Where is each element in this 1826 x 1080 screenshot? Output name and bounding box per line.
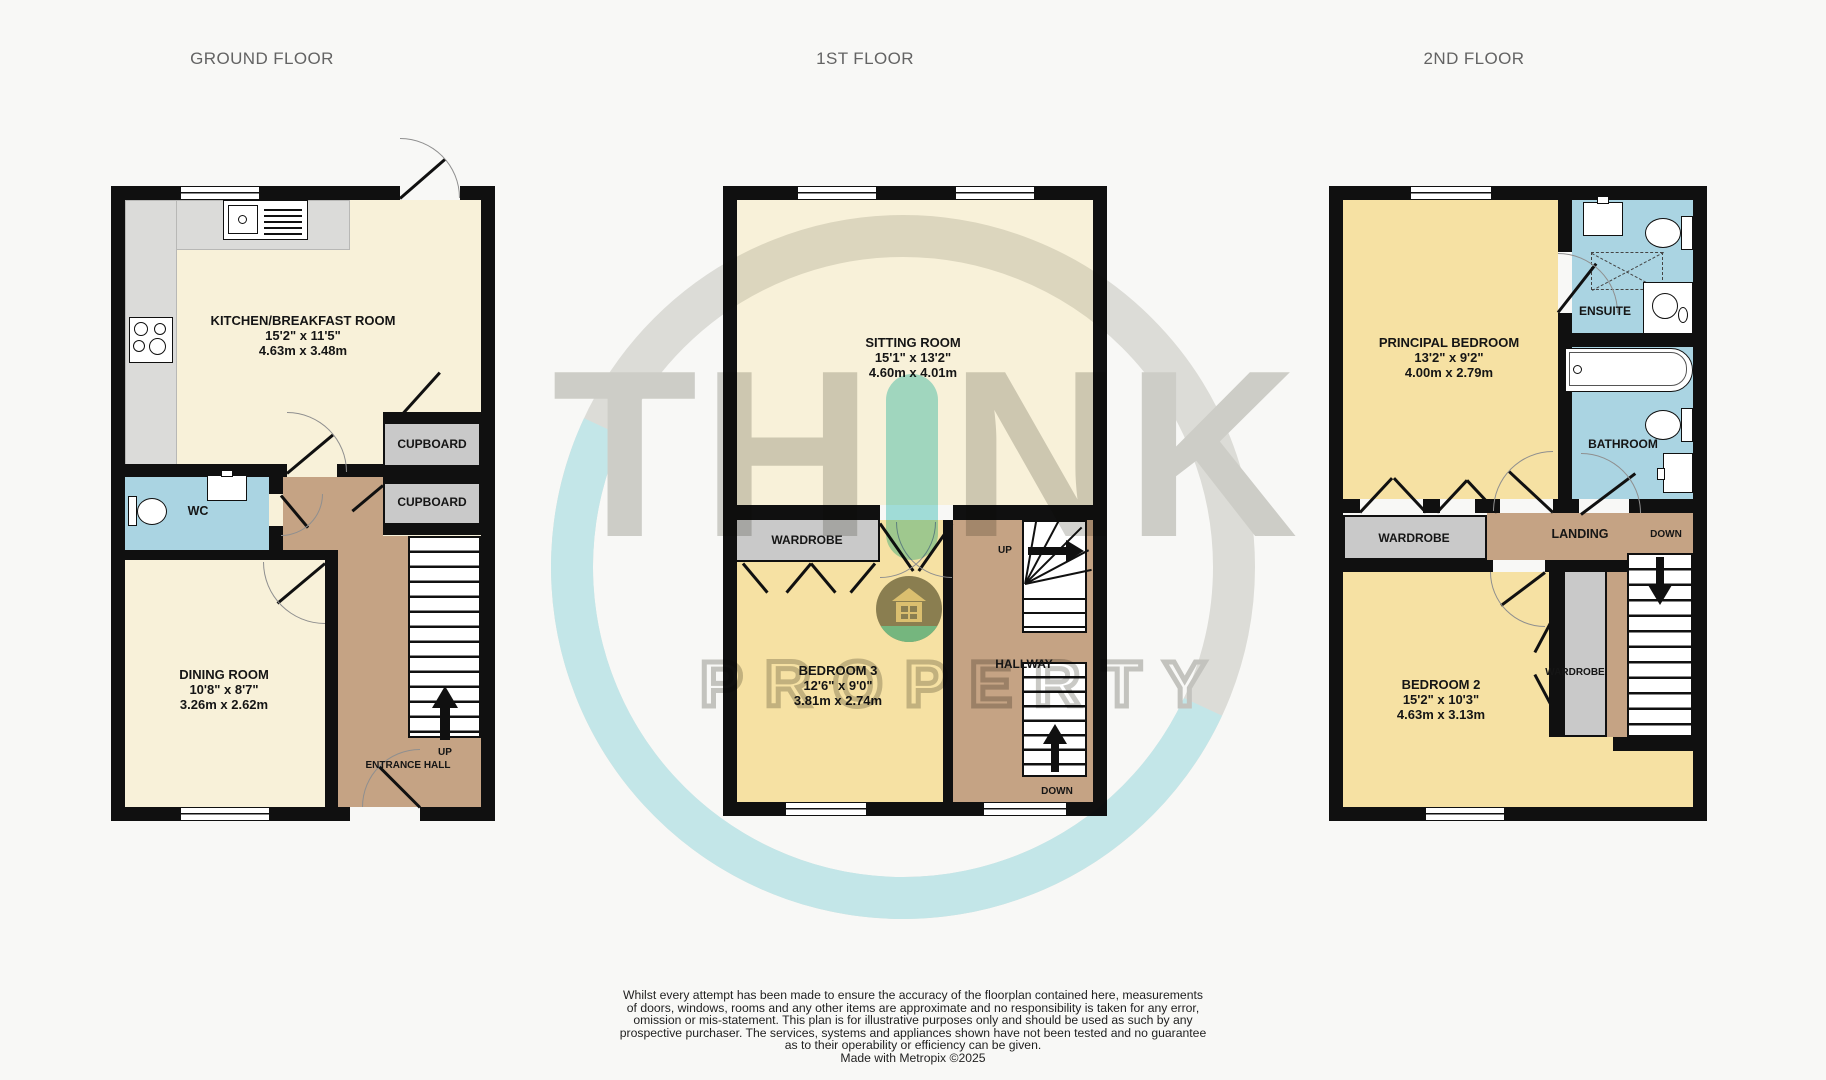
ground-floor-plan: KITCHEN/BREAKFAST ROOM 15'2" x 11'5" 4.6… bbox=[111, 186, 495, 821]
room-dim-metric: 3.81m x 2.74m bbox=[794, 693, 882, 708]
up-label: UP bbox=[998, 545, 1012, 556]
sink-bowl bbox=[228, 205, 258, 234]
stair-tread bbox=[1024, 626, 1085, 628]
stair-tread bbox=[1024, 612, 1085, 614]
cupboard1-label: CUPBOARD bbox=[397, 437, 466, 451]
entrance-hall-label: ENTRANCE HALL bbox=[366, 760, 451, 771]
down-label: DOWN bbox=[1041, 786, 1073, 797]
shower-head bbox=[1652, 293, 1678, 319]
landing-label: LANDING bbox=[1552, 527, 1609, 541]
wall-segment bbox=[1343, 499, 1360, 513]
room-dim-imperial: 15'2" x 10'3" bbox=[1397, 692, 1485, 707]
bedroom2-wardrobe bbox=[1563, 567, 1607, 737]
burner bbox=[154, 323, 166, 335]
wardrobe-label: WARDROBE bbox=[1378, 531, 1449, 545]
principal-bedroom-label: PRINCIPAL BEDROOM 13'2" x 9'2" 4.00m x 2… bbox=[1379, 335, 1519, 380]
stairs-up-arrow-stem bbox=[440, 706, 450, 740]
bath-tap bbox=[1573, 365, 1582, 374]
room-dim-metric: 4.63m x 3.13m bbox=[1397, 707, 1485, 722]
window bbox=[1410, 186, 1492, 200]
second-floor-plan: PRINCIPAL BEDROOM 13'2" x 9'2" 4.00m x 2… bbox=[1329, 186, 1707, 821]
window bbox=[180, 186, 260, 200]
bedroom3-label: BEDROOM 3 12'6" x 9'0" 3.81m x 2.74m bbox=[794, 663, 882, 708]
sink-drain bbox=[238, 215, 247, 224]
room-name: BEDROOM 2 bbox=[1397, 677, 1485, 692]
ensuite-basin bbox=[1583, 202, 1623, 236]
bathroom-label: BATHROOM bbox=[1588, 437, 1658, 451]
disclaimer-line: Whilst every attempt has been made to en… bbox=[413, 989, 1413, 1002]
bath-tub bbox=[1565, 348, 1693, 392]
wc-label: WC bbox=[188, 504, 209, 518]
drainer-line bbox=[264, 215, 302, 217]
drainer-line bbox=[264, 209, 302, 211]
wall-segment bbox=[1572, 333, 1693, 347]
wall-segment bbox=[111, 550, 338, 560]
wall-segment bbox=[1329, 807, 1707, 821]
wall-segment bbox=[1093, 186, 1107, 816]
bath-inner bbox=[1569, 352, 1687, 386]
wall-segment bbox=[723, 186, 1107, 200]
landing-strip bbox=[1607, 567, 1627, 737]
basin-tap bbox=[1597, 196, 1609, 204]
wall-segment bbox=[1558, 313, 1572, 499]
window bbox=[180, 807, 270, 821]
room-dim-metric: 4.00m x 2.79m bbox=[1379, 365, 1519, 380]
room-name: KITCHEN/BREAKFAST ROOM bbox=[211, 313, 396, 328]
kitchen-sink-unit bbox=[223, 200, 308, 240]
wall-segment bbox=[383, 525, 481, 535]
basin-tap bbox=[221, 470, 233, 477]
wardrobe2-label: WARDROBE bbox=[1545, 667, 1604, 678]
wall-segment bbox=[383, 467, 481, 482]
basin-tap bbox=[1657, 468, 1665, 480]
wall-segment bbox=[723, 186, 737, 816]
shower-control bbox=[1678, 307, 1688, 323]
room-name: PRINCIPAL BEDROOM bbox=[1379, 335, 1519, 350]
down-arrow-stem bbox=[1051, 742, 1059, 772]
cupboard2-label: CUPBOARD bbox=[397, 495, 466, 509]
hob bbox=[129, 317, 173, 363]
back-door-arc bbox=[400, 138, 460, 198]
ensuite-label: ENSUITE bbox=[1579, 304, 1631, 318]
dining-label: DINING ROOM 10'8" x 8'7" 3.26m x 2.62m bbox=[179, 667, 269, 712]
wc-toilet-bowl bbox=[137, 498, 167, 525]
window bbox=[1425, 807, 1505, 821]
wall-segment bbox=[325, 560, 338, 807]
window bbox=[797, 186, 877, 200]
ensuite-toilet-cistern bbox=[1681, 216, 1693, 250]
burner bbox=[149, 338, 166, 355]
window bbox=[955, 186, 1035, 200]
disclaimer: Whilst every attempt has been made to en… bbox=[413, 989, 1413, 1065]
first-floor-plan: SITTING ROOM 15'1" x 13'2" 4.60m x 4.01m… bbox=[723, 186, 1107, 816]
burner bbox=[133, 340, 145, 352]
room-dim-imperial: 10'8" x 8'7" bbox=[179, 682, 269, 697]
disclaimer-line: omission or mis-statement. This plan is … bbox=[413, 1014, 1413, 1027]
drainer-line bbox=[264, 227, 302, 229]
down-label: DOWN bbox=[1650, 529, 1682, 540]
wall-segment bbox=[383, 412, 481, 422]
wall-segment bbox=[1558, 186, 1572, 252]
stairs-up-arrow-head bbox=[432, 686, 458, 708]
metropix-credit: Made with Metropix ©2025 bbox=[413, 1052, 1413, 1065]
room-dim-imperial: 12'6" x 9'0" bbox=[794, 678, 882, 693]
wall-segment bbox=[1343, 560, 1493, 572]
up-label: UP bbox=[438, 747, 452, 758]
stair-tread bbox=[1024, 598, 1085, 600]
bathroom-toilet-bowl bbox=[1645, 410, 1681, 440]
room-name: DINING ROOM bbox=[179, 667, 269, 682]
up-arrow-head bbox=[1066, 540, 1084, 562]
window bbox=[983, 802, 1067, 816]
second-floor-title: 2ND FLOOR bbox=[1424, 49, 1525, 69]
room-dim-metric: 4.60m x 4.01m bbox=[865, 365, 960, 380]
burner bbox=[134, 322, 148, 336]
shower-unit bbox=[1643, 282, 1693, 334]
window bbox=[785, 802, 867, 816]
wc-basin bbox=[207, 475, 247, 501]
drainer-line bbox=[264, 221, 302, 223]
wc-toilet-cistern bbox=[128, 496, 137, 526]
wall-segment bbox=[1553, 499, 1579, 513]
room-dim-imperial: 15'1" x 13'2" bbox=[865, 350, 960, 365]
first-floor-title: 1ST FLOOR bbox=[816, 49, 914, 69]
ground-floor-title: GROUND FLOOR bbox=[190, 49, 334, 69]
up-arrow-stem bbox=[1028, 547, 1066, 555]
bedroom2-label: BEDROOM 2 15'2" x 10'3" 4.63m x 3.13m bbox=[1397, 677, 1485, 722]
hallway-label: HALLWAY bbox=[995, 657, 1053, 671]
ensuite-toilet-bowl bbox=[1645, 218, 1681, 248]
floorplan-page: GROUND FLOOR 1ST FLOOR 2ND FLOOR bbox=[0, 0, 1826, 1080]
sitting-room-label: SITTING ROOM 15'1" x 13'2" 4.60m x 4.01m bbox=[865, 335, 960, 380]
wall-segment bbox=[111, 186, 125, 821]
room-name: SITTING ROOM bbox=[865, 335, 960, 350]
room-dim-imperial: 13'2" x 9'2" bbox=[1379, 350, 1519, 365]
down-arrow-head bbox=[1648, 585, 1672, 605]
wall-segment bbox=[111, 464, 287, 477]
room-name: BEDROOM 3 bbox=[794, 663, 882, 678]
kitchen-label: KITCHEN/BREAKFAST ROOM 15'2" x 11'5" 4.6… bbox=[211, 313, 396, 358]
wall-segment bbox=[1329, 186, 1343, 821]
room-dim-metric: 3.26m x 2.62m bbox=[179, 697, 269, 712]
bathroom-toilet-cistern bbox=[1681, 408, 1693, 442]
wardrobe-label: WARDROBE bbox=[771, 533, 842, 547]
down-arrow-head bbox=[1043, 724, 1067, 744]
room-dim-imperial: 15'2" x 11'5" bbox=[211, 328, 396, 343]
room-dim-metric: 4.63m x 3.48m bbox=[211, 343, 396, 358]
wall-segment bbox=[269, 464, 283, 494]
wall-segment bbox=[1329, 186, 1707, 200]
down-arrow-stem bbox=[1656, 557, 1664, 585]
wall-segment bbox=[723, 505, 880, 520]
drainer-line bbox=[264, 233, 302, 235]
wall-segment bbox=[481, 186, 495, 821]
bathroom-basin bbox=[1663, 453, 1693, 493]
wall-segment bbox=[953, 505, 1107, 520]
wall-segment bbox=[420, 807, 495, 821]
wall-segment bbox=[1613, 737, 1707, 751]
